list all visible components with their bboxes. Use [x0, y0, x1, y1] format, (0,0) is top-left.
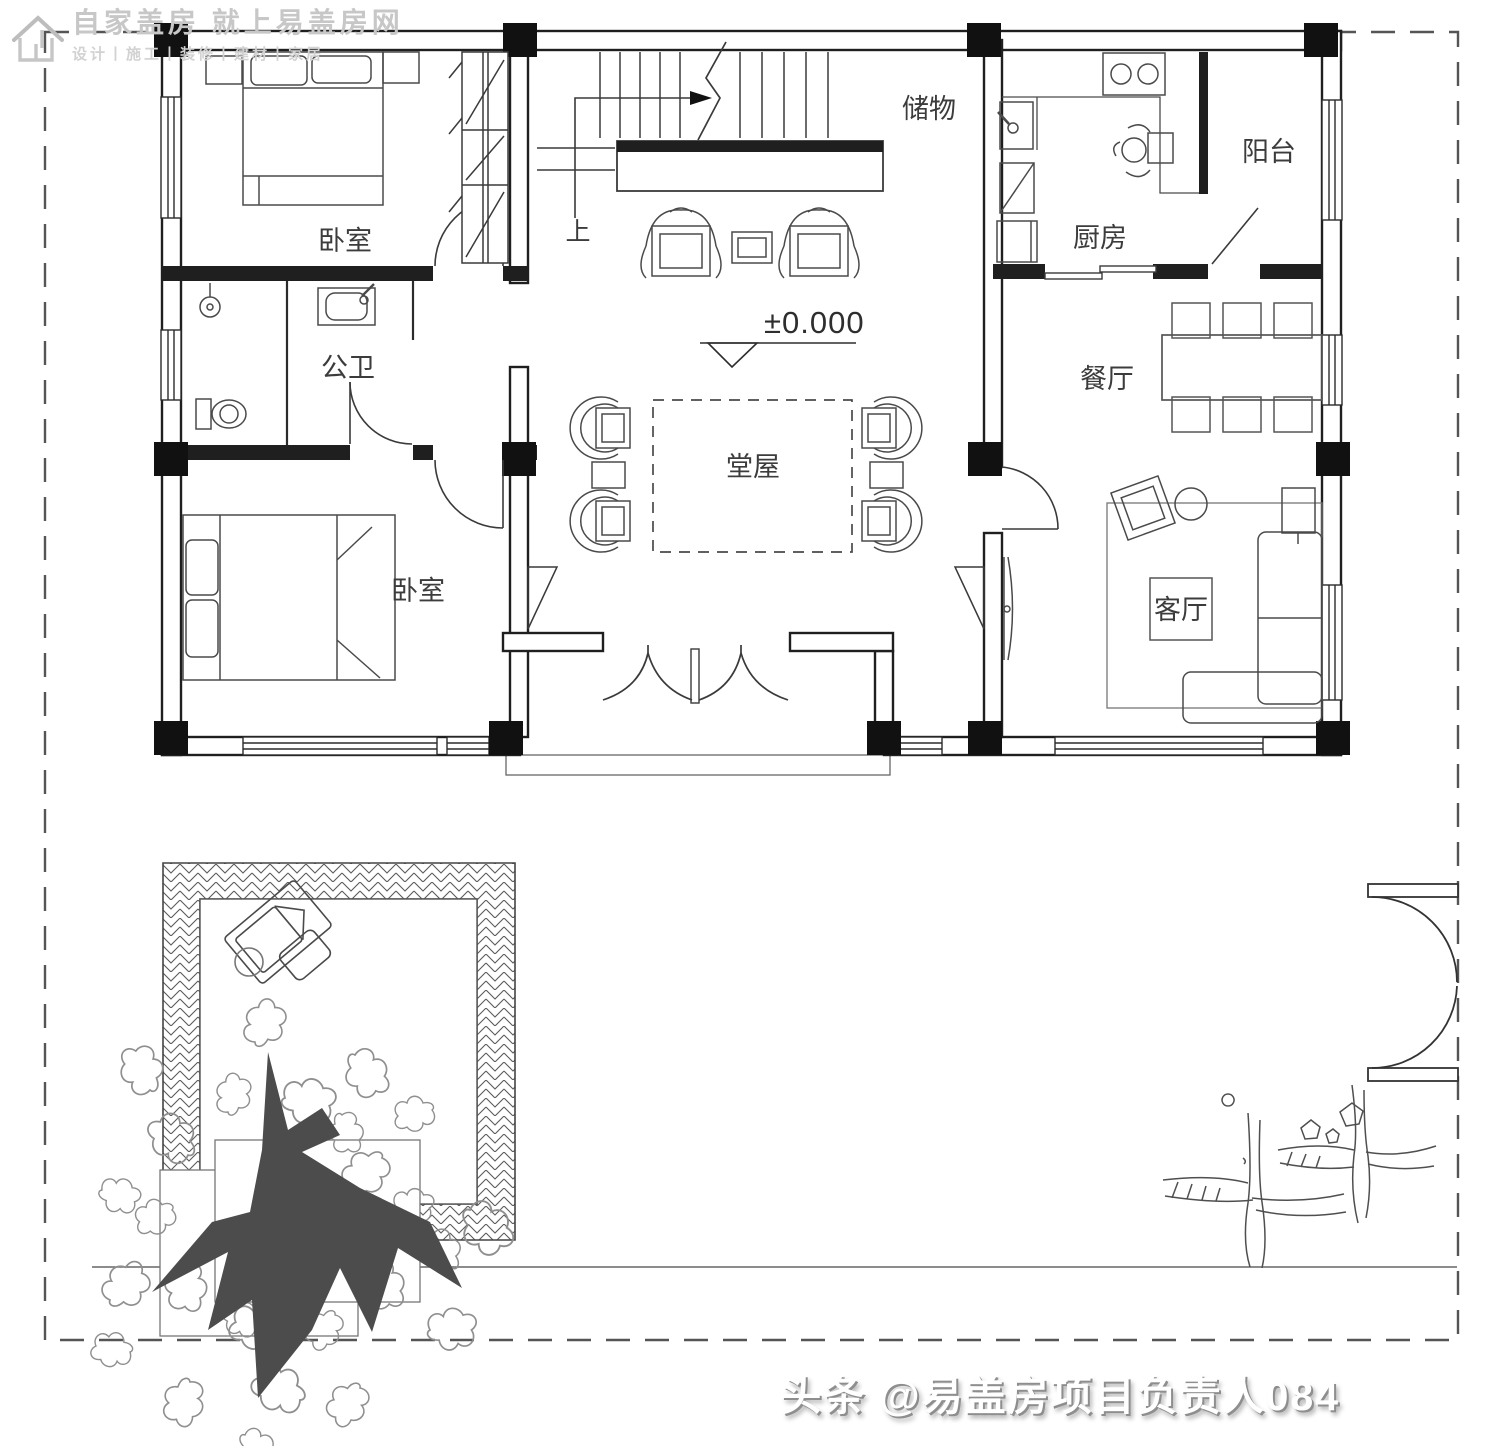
door-living-room: [1002, 467, 1058, 529]
elevation-label: ±0.000: [764, 305, 865, 340]
dining-chair: [1274, 303, 1312, 338]
entrance-double-door: [603, 645, 788, 703]
bed-bottom: [183, 515, 395, 680]
dining-chair: [1223, 397, 1261, 432]
hall-side-table: [592, 462, 625, 488]
hall-chair: [570, 397, 630, 459]
stair-up-arrow: [575, 98, 690, 218]
hall-chair: [570, 490, 630, 552]
shower-icon: [200, 283, 220, 317]
dining-chair: [1223, 303, 1261, 338]
doors: [350, 198, 1258, 703]
stove-icon: [1103, 53, 1165, 95]
dining-set: [1162, 303, 1322, 432]
label-kitchen: 厨房: [1073, 223, 1127, 253]
label-bedroom-bottom: 卧室: [391, 576, 445, 606]
staircase: [537, 42, 883, 218]
stair-console: [617, 141, 883, 191]
label-stairs-up: 上: [565, 218, 590, 246]
windows: [161, 97, 1342, 755]
hall-chair: [862, 490, 922, 552]
door-balcony: [1212, 208, 1258, 264]
label-bedroom-top: 卧室: [318, 226, 372, 256]
tea-table: [732, 232, 772, 263]
dining-chair: [1172, 303, 1210, 338]
entrance-porch: [506, 755, 890, 775]
wardrobe: [449, 52, 508, 263]
hall-side-table: [870, 462, 903, 488]
stair-break-line: [698, 42, 726, 140]
toilet-icon: [196, 399, 246, 429]
gate: [1368, 884, 1458, 1081]
walls-exterior: [162, 31, 1341, 755]
armchair: [641, 208, 721, 278]
attribution-handle: 头条 @易盖房项目负责人084: [780, 1362, 1340, 1422]
label-balcony: 阳台: [1242, 137, 1296, 167]
hall-chair: [862, 397, 922, 459]
label-storage: 储物: [902, 94, 956, 124]
person-at-counter: [1114, 125, 1173, 177]
label-bathroom: 公卫: [321, 353, 375, 383]
counter-edge: [1002, 97, 1199, 193]
dining-chair: [1172, 397, 1210, 432]
dining-chair: [1274, 397, 1312, 432]
tv-icon: [1004, 557, 1013, 660]
bed-top: [206, 52, 419, 205]
site-watermark: 自家盖房 就上易盖房网 设计丨施工丨装修丨建材丨家居: [8, 8, 404, 64]
cabinet: [1000, 163, 1034, 213]
dining-table: [1162, 335, 1322, 400]
kitchen-sink-icon: [998, 102, 1033, 149]
floor-plan-drawing: ±0.000: [0, 0, 1500, 1446]
pier-hatch-triangles: [528, 567, 984, 629]
watermark-subtitle: 设计丨施工丨装修丨建材丨家居: [72, 43, 404, 64]
sliding-door-kitchen: [1045, 266, 1156, 279]
floor-plan-page: ±0.000: [0, 0, 1500, 1446]
door-bathroom: [350, 382, 412, 444]
wall-art: [1111, 476, 1175, 540]
floor-lamp: [1175, 488, 1207, 520]
watermark-title: 自家盖房 就上易盖房网: [72, 8, 404, 39]
elevation-marker: [700, 343, 856, 367]
label-dining: 餐厅: [1080, 364, 1134, 394]
label-hall: 堂屋: [726, 452, 780, 482]
label-living: 客厅: [1154, 595, 1208, 625]
sink-icon: [318, 284, 375, 325]
walls-interior: [162, 52, 1323, 460]
armchair: [779, 208, 859, 278]
door-bedroom-bottom: [435, 460, 503, 528]
hall-furniture: [570, 208, 922, 552]
house-logo-icon: [8, 8, 66, 64]
shrub-sketches: [1163, 1085, 1436, 1268]
